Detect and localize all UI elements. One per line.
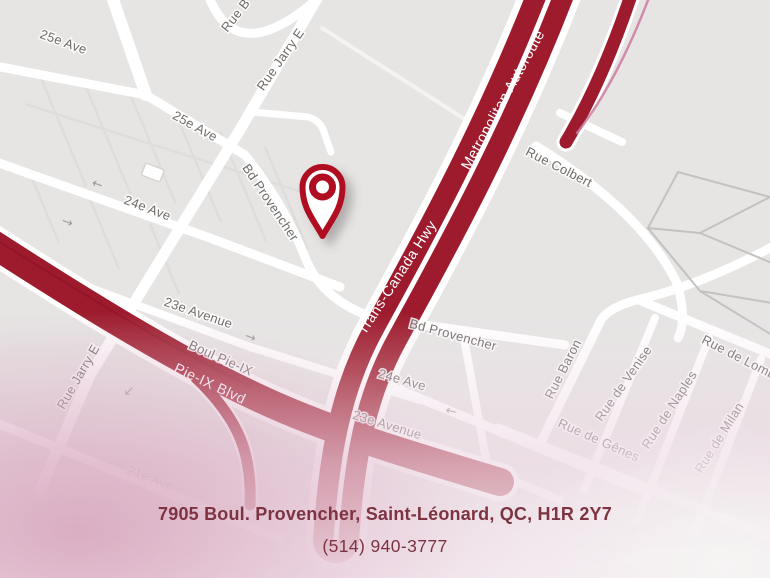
map-container[interactable]: ←→→↙← 25e Ave25e AveRue Jarry ERue B24e … — [0, 0, 770, 578]
one-way-arrow-icon: ↙ — [124, 384, 135, 399]
address-text: 7905 Boul. Provencher, Saint-Léonard, QC… — [158, 504, 612, 525]
map-canvas[interactable]: ←→→↙← 25e Ave25e AveRue Jarry ERue B24e … — [0, 0, 770, 578]
phone-number: (514) 940-3777 — [322, 536, 447, 557]
